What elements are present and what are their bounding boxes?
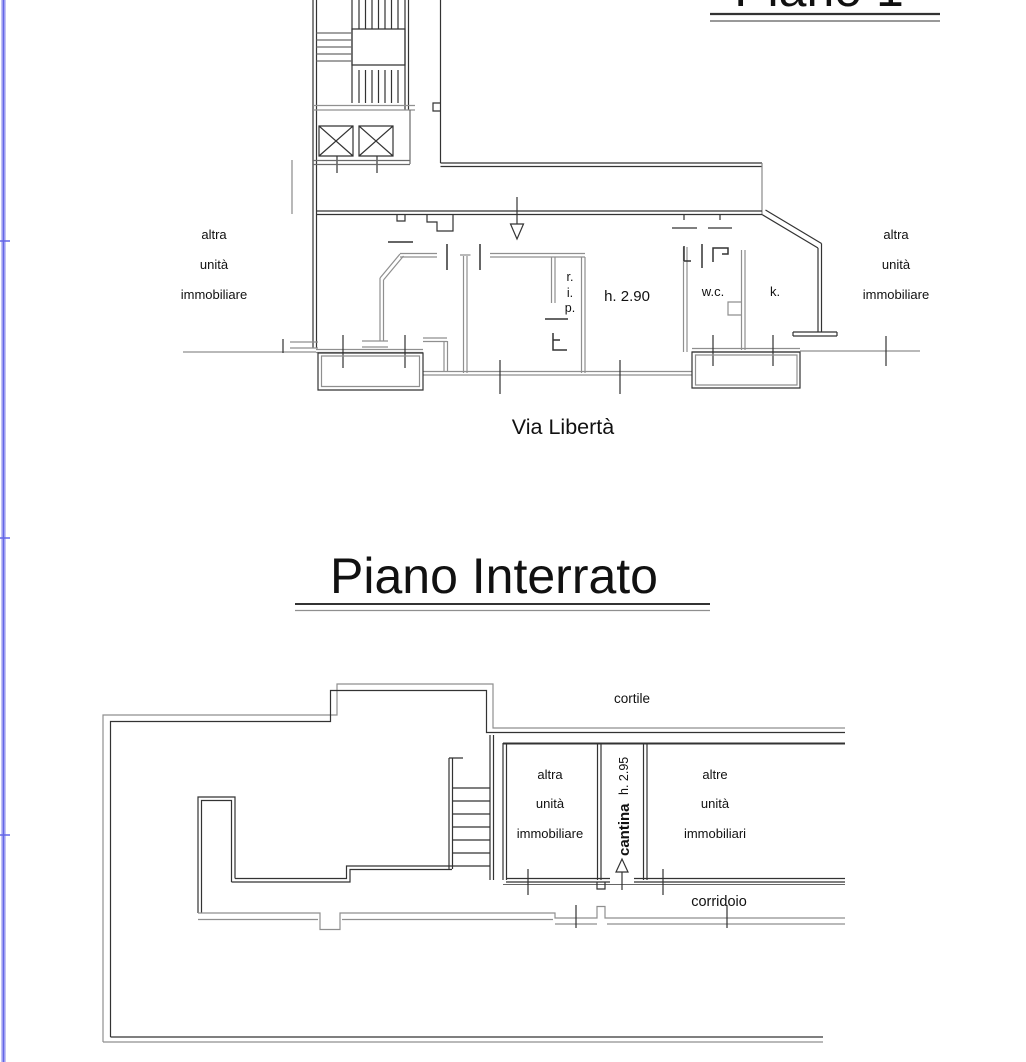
upper-right-unit-label: unità [882, 257, 911, 272]
closet-partition [552, 257, 556, 303]
angled-partition [380, 254, 404, 280]
sheet-border [0, 0, 10, 1062]
floorplan-sheet: Piano 1° altra unità immobiliare altra u… [0, 0, 1026, 1062]
upper-right-unit-label: altra [883, 227, 909, 242]
cantina-left-wall [598, 743, 602, 880]
basement-plan-title: Piano Interrato [330, 548, 658, 604]
wall-notch [433, 103, 441, 111]
closet-label: i. [567, 286, 573, 300]
stair-landing-wall [313, 106, 415, 111]
basement-right-unit-label: immobiliari [684, 826, 746, 841]
cellar-arrow-icon [616, 859, 628, 890]
diagonal-wall [762, 210, 837, 336]
wc-wall [684, 247, 688, 352]
closet-label: r. [567, 270, 574, 284]
corridor-label: corridoio [691, 894, 747, 910]
basement-right-unit-label: altre [702, 767, 727, 782]
stair-landing [352, 29, 405, 65]
cantina-right-wall [644, 743, 648, 880]
wc-kitchen-divider [728, 250, 745, 350]
street-label: Via Libertà [512, 415, 614, 439]
upper-plan [183, 0, 940, 394]
basement-left-unit-label: unità [536, 796, 565, 811]
stair-treads [453, 788, 491, 866]
closet-label: p. [565, 301, 575, 315]
elevator-icon [359, 126, 393, 156]
basement-rooms [503, 743, 845, 895]
upper-right-unit-label: immobiliare [863, 287, 929, 302]
stair-treads-lower-flight [359, 70, 398, 103]
cellar-height-label: h. 2.95 [617, 757, 631, 795]
ceiling-height-label: h. 2.90 [604, 288, 650, 305]
floor-plan-drawing: Piano 1° altra unità immobiliare altra u… [0, 0, 1026, 1062]
basement-interior-walls [198, 735, 494, 913]
elevator-icon [319, 126, 353, 156]
balcony [318, 353, 423, 390]
basement-right-unit-label: unità [701, 796, 730, 811]
balcony [692, 352, 800, 388]
wc-label: w.c. [701, 284, 724, 299]
corridor-walls [292, 160, 762, 231]
cellar-label: cantina [616, 803, 633, 856]
upper-left-unit-label: altra [201, 227, 227, 242]
basement-corridor-walls [198, 905, 845, 930]
windows-balconies [183, 335, 920, 394]
basement-plan [103, 604, 845, 1042]
basement-left-unit-label: immobiliare [517, 826, 583, 841]
stair-treads-upper-flight [359, 0, 398, 29]
upper-left-unit-label: immobiliare [181, 287, 247, 302]
basement-left-unit-label: altra [537, 767, 563, 782]
elevator-icons [313, 110, 410, 173]
stairwell [313, 0, 441, 348]
kitchen-label: k. [770, 284, 780, 299]
upper-plan-title: Piano 1° [734, 0, 924, 17]
door-jambs [388, 242, 728, 350]
courtyard-label: cortile [614, 691, 650, 706]
outer-boundary [103, 684, 845, 1042]
entrance-arrow-icon [511, 197, 524, 239]
pilaster [427, 215, 453, 232]
basement-stairs [449, 735, 494, 880]
upper-left-unit-label: unità [200, 257, 229, 272]
